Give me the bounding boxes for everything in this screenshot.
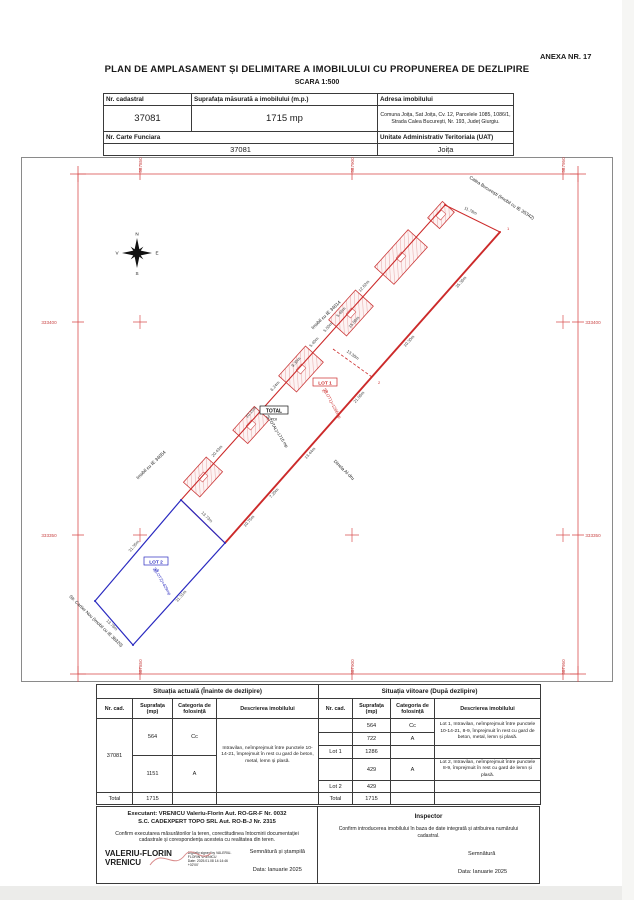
compass-e: E — [155, 251, 158, 256]
grid-northing-label: 333400 — [41, 320, 57, 325]
table-row: Lot 2 429 — [319, 781, 541, 793]
scale-label: SCARA 1:500 — [0, 79, 634, 86]
map-svg: 587850 587900 587950 587850 587900 58795… — [21, 157, 613, 682]
executant-line2: S.C. CADEXPERT TOPO SRL Aut. RO-B-J Nr. … — [97, 819, 317, 827]
header-carte-funciara: Nr. Carte Funciara — [104, 132, 378, 144]
page-title: PLAN DE AMPLASAMENT ȘI DELIMITARE A IMOB… — [0, 64, 634, 75]
grid-easting-label: 587950 — [561, 659, 566, 675]
table-row: Lot 1 1286 — [319, 746, 541, 759]
map-frame — [22, 158, 613, 682]
header-uat: Unitate Administrativ Teritoriala (UAT) — [378, 132, 514, 144]
col-header: Nr. cad. — [319, 699, 353, 719]
lot2-label-cell: Lot 2 — [319, 781, 353, 793]
grid-northing-label: 333400 — [585, 320, 601, 325]
table-row: Total 1715 — [97, 793, 319, 805]
semnatura-stampila-label: Semnătură și ștampilă — [244, 849, 311, 855]
signature-row: VALERIU-FLORIN VRENICU Digitally signed … — [105, 849, 311, 873]
page-right-shade — [622, 0, 634, 900]
situatia-actuala-title: Situația actuală (Înainte de dezlipire) — [97, 685, 319, 699]
svg-text:LOT 1: LOT 1 — [318, 381, 332, 387]
categorie-cell: A — [173, 756, 217, 793]
nr-cadastral-value: 37081 — [104, 106, 192, 132]
table-row: 564 Cc Lot 1, Intravilan, neîmprejmuit î… — [319, 719, 541, 733]
handwritten-signature-icon — [145, 845, 215, 873]
semnatura-label: Semnătură — [468, 851, 495, 857]
table-row: 429 A Lot 2, Intravilan, neîmprejmuit în… — [319, 759, 541, 781]
situatia-actuala-table: Situația actuală (Înainte de dezlipire) … — [96, 684, 319, 805]
suprafata-cell: 564 — [133, 719, 173, 756]
grid-easting-label: 587900 — [350, 157, 355, 173]
grid-easting-label: 587950 — [561, 157, 566, 173]
inspector-title: Inspector — [318, 813, 539, 820]
situatia-viitoare-table: Situația viitoare (După dezlipire) Nr. c… — [318, 684, 541, 805]
table-row: 37081 1715 mp Comuna Joița, Sat Joița, C… — [104, 106, 514, 132]
site-plan-map: 587850 587900 587950 587850 587900 58795… — [21, 157, 613, 682]
table-row: Nr. Carte Funciara Unitate Administrativ… — [104, 132, 514, 144]
descriere-lot2-cell: Lot 2, Intravilan, neîmprejmuit între pu… — [435, 759, 541, 781]
executant-confirm-text: Confirm executarea măsurătorilor la tere… — [104, 831, 310, 844]
col-header: Suprafața (mp) — [133, 699, 173, 719]
table-row: Situația viitoare (După dezlipire) — [319, 685, 541, 699]
annex-label: ANEXA NR. 17 — [540, 52, 591, 61]
categorie-cell: Cc — [391, 719, 435, 733]
executant-line1: Executant: VRENICU Valeriu-Florin Aut. R… — [97, 811, 317, 819]
grid-easting-label: 587900 — [350, 659, 355, 675]
cadastral-header-table: Nr. cadastral Suprafața măsurată a imobi… — [103, 93, 514, 156]
nr-cad-cell: 37081 — [97, 719, 133, 793]
categorie-cell: A — [391, 759, 435, 781]
page-bottom-shade — [0, 886, 634, 900]
suprafata-cell: 722 — [353, 733, 391, 746]
descriere-lot1-cell: Lot 1, Intravilan, neîmprejmuit între pu… — [435, 719, 541, 746]
inspector-confirm-text: Confirm introducerea imobilului în baza … — [330, 826, 527, 840]
adresa-value: Comuna Joița, Sat Joița, Cv. 12, Parcele… — [378, 106, 514, 132]
header-nr-cadastral: Nr. cadastral — [104, 94, 192, 106]
lot1-label-cell: Lot 1 — [319, 746, 353, 759]
lot1-total-cell: 1286 — [353, 746, 391, 759]
carte-funciara-value: 37081 — [104, 144, 378, 156]
grid-easting-label: 587850 — [138, 659, 143, 675]
uat-value: Joița — [378, 144, 514, 156]
grid-northing-label: 333350 — [585, 533, 601, 538]
inspector-box: Inspector Confirm introducerea imobilulu… — [318, 806, 540, 884]
table-row: Situația actuală (Înainte de dezlipire) — [97, 685, 319, 699]
suprafata-cell: 564 — [353, 719, 391, 733]
col-header: Categoria de folosință — [173, 699, 217, 719]
data-label: Data: Ianuarie 2025 — [458, 869, 507, 875]
header-adresa: Adresa imobilului — [378, 94, 514, 106]
col-header: Categoria de folosință — [391, 699, 435, 719]
table-row: Total 1715 — [319, 793, 541, 805]
svg-text:LOT 2: LOT 2 — [149, 560, 163, 566]
table-row: Nr. cad. Suprafața (mp) Categoria de fol… — [97, 699, 319, 719]
total-value-cell: 1715 — [133, 793, 173, 805]
total-value-cell: 1715 — [353, 793, 391, 805]
suprafata-cell: 1151 — [133, 756, 173, 793]
total-label-cell: Total — [319, 793, 353, 805]
situatia-viitoare-title: Situația viitoare (După dezlipire) — [319, 685, 541, 699]
table-row: Nr. cad. Suprafața (mp) Categoria de fol… — [319, 699, 541, 719]
table-row: Nr. cadastral Suprafața măsurată a imobi… — [104, 94, 514, 106]
suprafata-cell: 429 — [353, 759, 391, 781]
executant-box: Executant: VRENICU Valeriu-Florin Aut. R… — [96, 806, 318, 884]
col-header: Nr. cad. — [97, 699, 133, 719]
categorie-cell: A — [391, 733, 435, 746]
grid-northing-label: 333350 — [41, 533, 57, 538]
categorie-cell: Cc — [173, 719, 217, 756]
col-header: Suprafața (mp) — [353, 699, 391, 719]
suprafata-value: 1715 mp — [192, 106, 378, 132]
total-label-cell: Total — [97, 793, 133, 805]
col-header: Descrierea imobilului — [435, 699, 541, 719]
col-header: Descrierea imobilului — [217, 699, 319, 719]
data-label: Data: Ianuarie 2025 — [244, 867, 311, 873]
compass-n: N — [135, 232, 138, 237]
table-row: 37081 Joița — [104, 144, 514, 156]
grid-easting-label: 587850 — [138, 157, 143, 173]
lot2-total-cell: 429 — [353, 781, 391, 793]
table-row: 37081 564 Cc Intravilan, neîmprejmuit în… — [97, 719, 319, 756]
cadastral-plan-document: { "page": { "annex": "ANEXA NR. 17", "ti… — [0, 0, 634, 900]
descriere-cell: Intravilan, neîmprejmuit între punctele … — [217, 719, 319, 793]
header-suprafata: Suprafața măsurată a imobilului (m.p.) — [192, 94, 378, 106]
compass-s: S — [135, 271, 138, 276]
